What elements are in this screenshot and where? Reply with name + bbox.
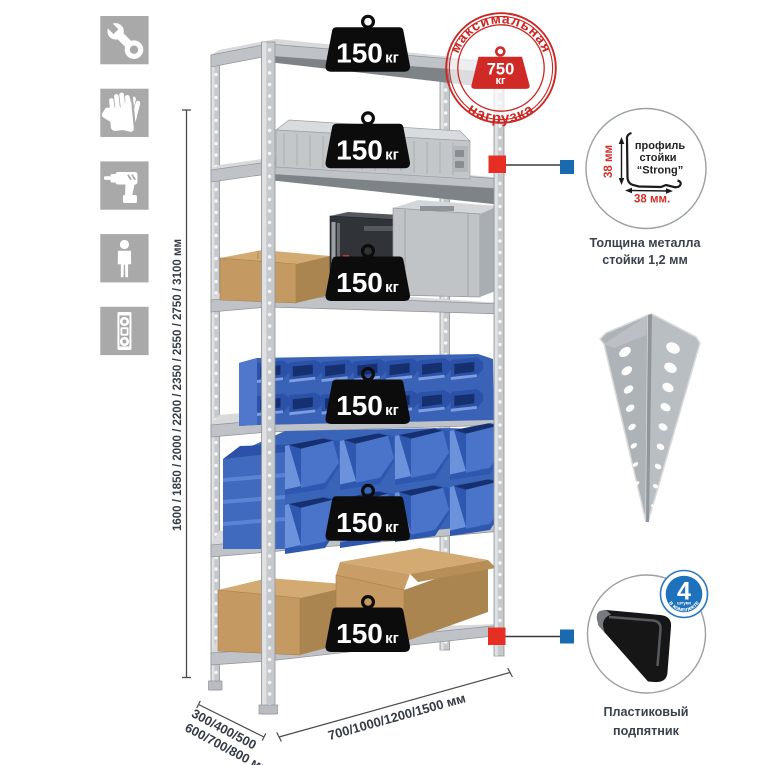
svg-text:Пластиковый: Пластиковый — [603, 705, 688, 719]
svg-text:“Strong”: “Strong” — [637, 165, 683, 177]
svg-text:кг: кг — [385, 50, 399, 67]
svg-text:подпятник: подпятник — [613, 724, 680, 738]
svg-text:кг: кг — [385, 402, 399, 419]
svg-text:150: 150 — [336, 507, 383, 538]
svg-text:150: 150 — [336, 390, 383, 421]
svg-text:Толщина металла: Толщина металла — [589, 236, 701, 250]
svg-text:кг: кг — [385, 279, 399, 296]
svg-text:кг: кг — [385, 519, 399, 536]
svg-text:700/1000/1200/1500 мм: 700/1000/1200/1500 мм — [326, 690, 467, 743]
svg-text:стойки 1,2 мм: стойки 1,2 мм — [602, 253, 688, 267]
svg-text:кг: кг — [385, 630, 399, 647]
svg-text:1600 / 1850 / 2000 / 2200 / 23: 1600 / 1850 / 2000 / 2200 / 2350 / 2550 … — [172, 239, 184, 531]
svg-text:кг: кг — [385, 146, 399, 163]
svg-text:кг: кг — [495, 75, 506, 87]
svg-text:профиль: профиль — [635, 140, 685, 152]
svg-text:150: 150 — [336, 618, 383, 649]
svg-text:150: 150 — [336, 38, 383, 69]
svg-text:штуки: штуки — [677, 601, 691, 606]
svg-text:38 мм: 38 мм — [603, 145, 615, 178]
svg-text:стойки: стойки — [639, 152, 676, 164]
svg-text:150: 150 — [336, 134, 383, 165]
svg-text:150: 150 — [336, 267, 383, 298]
svg-text:38 мм.: 38 мм. — [634, 194, 670, 206]
